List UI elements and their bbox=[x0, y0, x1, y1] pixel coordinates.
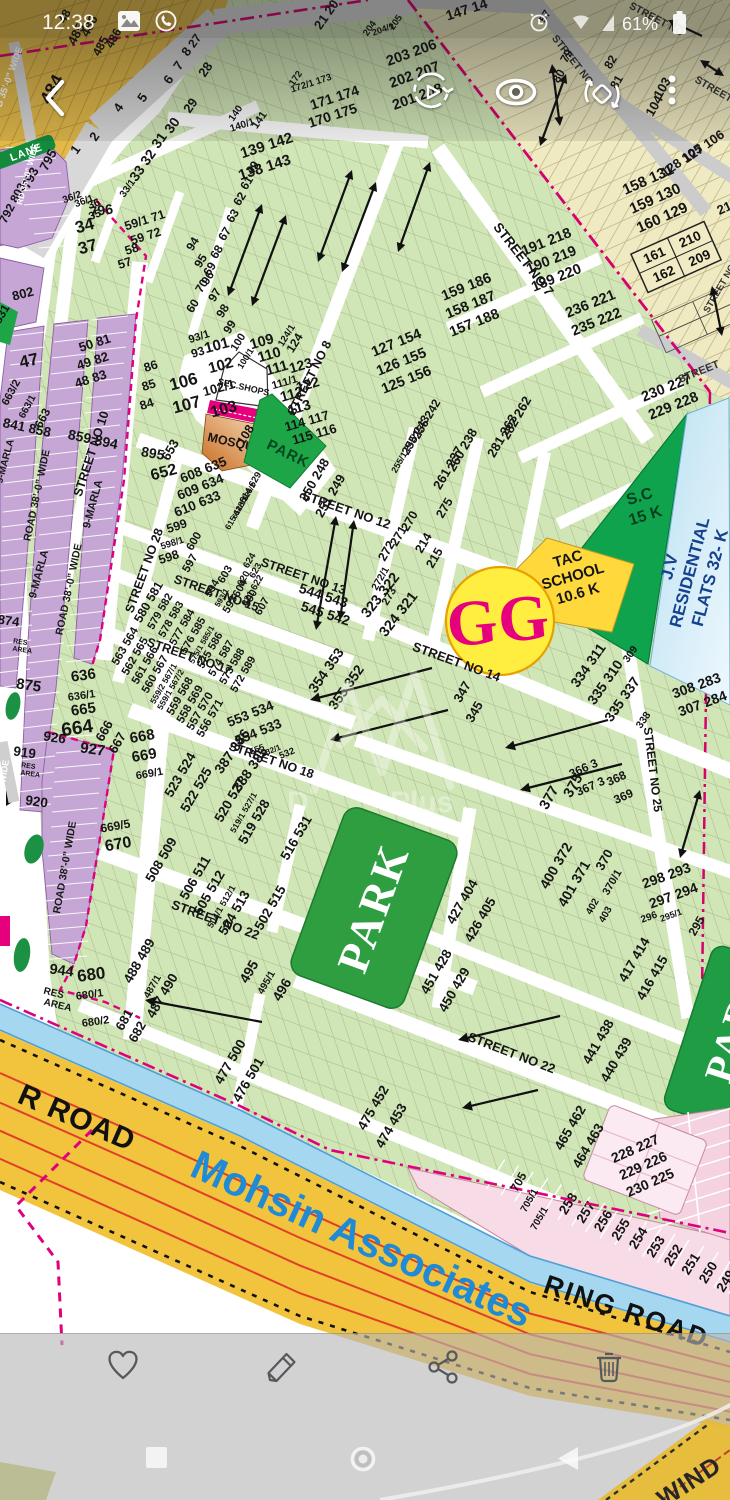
svg-text:944: 944 bbox=[48, 961, 74, 980]
svg-text:664: 664 bbox=[60, 716, 95, 741]
svg-text:920: 920 bbox=[24, 793, 48, 811]
svg-text:875: 875 bbox=[15, 675, 42, 695]
svg-text:636: 636 bbox=[70, 665, 97, 685]
svg-text:680: 680 bbox=[76, 963, 107, 986]
svg-text:Plus: Plus bbox=[390, 786, 453, 819]
svg-text:874: 874 bbox=[0, 612, 21, 630]
svg-text:919: 919 bbox=[12, 744, 36, 762]
svg-text:D: D bbox=[287, 786, 309, 819]
svg-text:47: 47 bbox=[18, 349, 40, 372]
svg-text:61%: 61% bbox=[622, 14, 658, 34]
svg-text:GG: GG bbox=[444, 581, 553, 662]
svg-text:12:38: 12:38 bbox=[42, 11, 95, 34]
